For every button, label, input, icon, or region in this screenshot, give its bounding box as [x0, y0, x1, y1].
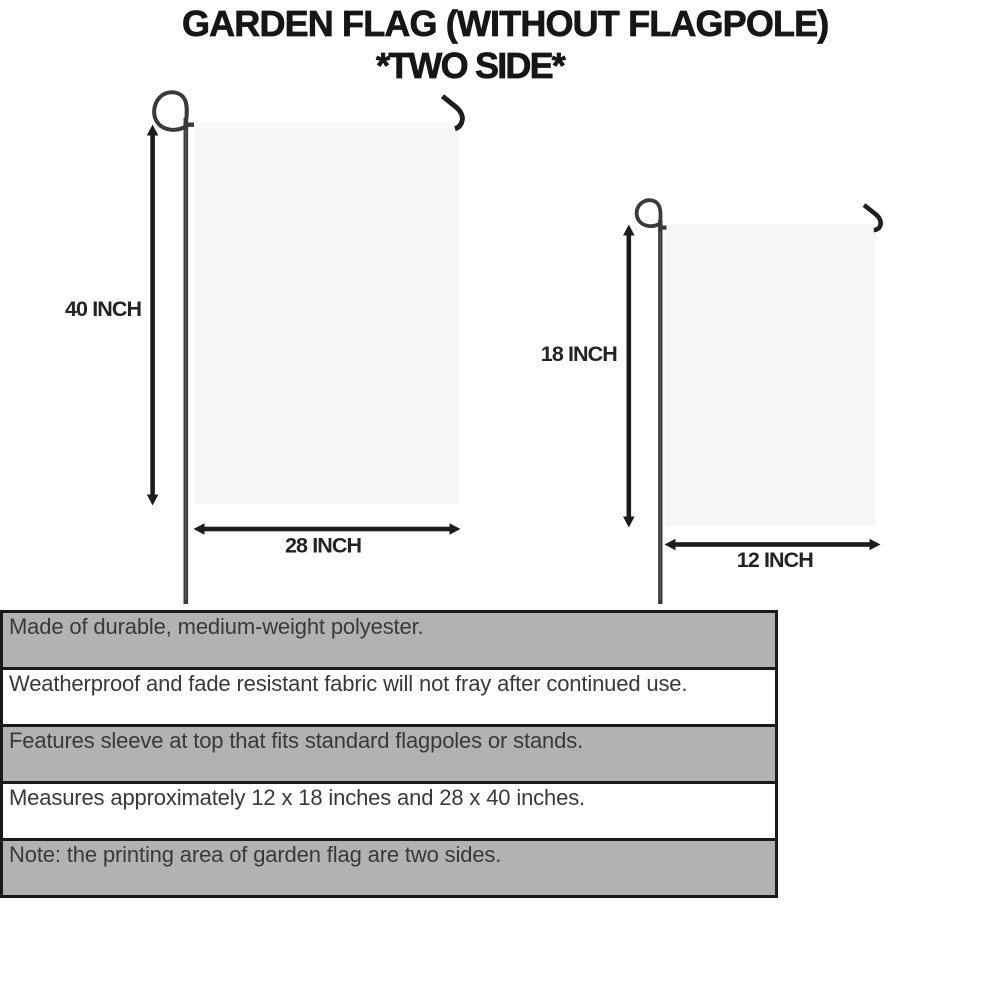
svg-text:28 INCH: 28 INCH: [285, 534, 362, 558]
svg-text:18 INCH: 18 INCH: [541, 342, 618, 366]
svg-text:40 INCH: 40 INCH: [65, 297, 142, 321]
svg-text:12 INCH: 12 INCH: [737, 548, 814, 572]
